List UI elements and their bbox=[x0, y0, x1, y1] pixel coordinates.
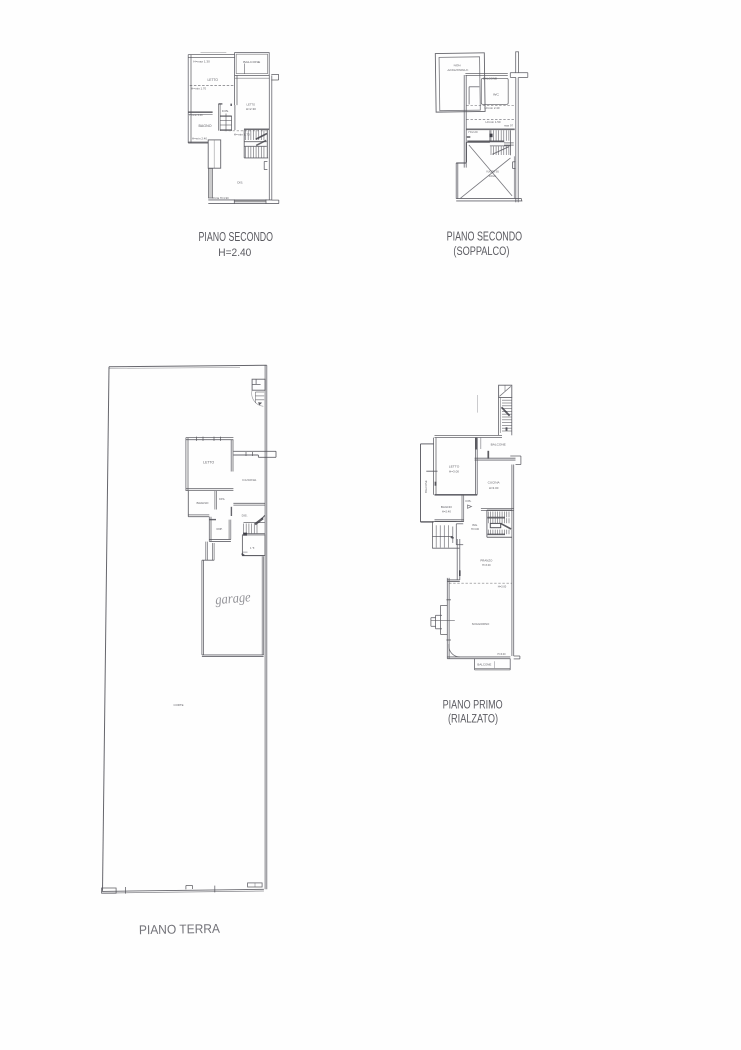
svg-text:H=3.00: H=3.00 bbox=[449, 469, 459, 473]
svg-text:BALCONE: BALCONE bbox=[243, 60, 260, 64]
svg-text:garage: garage bbox=[215, 590, 252, 608]
svg-text:H=3.00: H=3.00 bbox=[482, 564, 491, 567]
svg-text:PIANO TERRA: PIANO TERRA bbox=[139, 921, 221, 937]
svg-text:BAGNO: BAGNO bbox=[441, 505, 453, 509]
svg-text:DIS.: DIS. bbox=[222, 109, 229, 113]
svg-text:SOGG.: SOGG. bbox=[489, 174, 497, 178]
svg-text:PIANO SECONDO: PIANO SECONDO bbox=[199, 230, 274, 244]
svg-text:DIS.: DIS. bbox=[242, 514, 248, 518]
svg-text:H=3.00: H=3.00 bbox=[471, 528, 480, 531]
svg-text:LETTO: LETTO bbox=[207, 78, 218, 82]
svg-text:CUCINA: CUCINA bbox=[488, 481, 500, 485]
svg-text:(RIALZATO): (RIALZATO) bbox=[448, 714, 498, 726]
svg-text:CORTE: CORTE bbox=[174, 703, 184, 707]
svg-text:H=min 1.50: H=min 1.50 bbox=[486, 120, 502, 124]
svg-text:BALCONE: BALCONE bbox=[477, 663, 491, 667]
svg-text:PIANO PRIMO: PIANO PRIMO bbox=[443, 697, 503, 711]
svg-text:PIANO SECONDO: PIANO SECONDO bbox=[447, 230, 523, 244]
svg-text:DIS.: DIS. bbox=[237, 181, 243, 185]
svg-text:(SOPPALCO): (SOPPALCO) bbox=[453, 246, 509, 258]
svg-text:Porta H=1.90: Porta H=1.90 bbox=[213, 197, 230, 200]
svg-text:H=3.00: H=3.00 bbox=[498, 586, 507, 589]
svg-text:ING.: ING. bbox=[472, 523, 478, 527]
svg-text:I.T.: I.T. bbox=[250, 546, 255, 550]
svg-text:H=min 2.40: H=min 2.40 bbox=[192, 137, 208, 140]
svg-text:H=min 1.70: H=min 1.70 bbox=[191, 87, 207, 91]
svg-text:LETTO: LETTO bbox=[203, 461, 214, 465]
svg-text:LETTO: LETTO bbox=[247, 102, 256, 106]
svg-text:DIS.: DIS. bbox=[219, 497, 225, 501]
svg-text:BALCONE: BALCONE bbox=[491, 442, 506, 446]
svg-text:BAGNO: BAGNO bbox=[199, 124, 213, 128]
svg-text:SOGGIORNO: SOGGIORNO bbox=[472, 622, 490, 626]
svg-text:H=2.20: H=2.20 bbox=[469, 131, 479, 134]
svg-text:CUCINA: CUCINA bbox=[242, 478, 257, 482]
svg-text:VUOTO SU: VUOTO SU bbox=[486, 170, 499, 174]
svg-text:H=min 2.40: H=min 2.40 bbox=[485, 106, 501, 110]
svg-text:BAGNO: BAGNO bbox=[197, 501, 210, 505]
svg-text:PRANZO: PRANZO bbox=[480, 558, 493, 562]
svg-text:NON: NON bbox=[454, 63, 461, 67]
svg-text:ACCESSIBILE: ACCESSIBILE bbox=[447, 68, 468, 72]
svg-text:H=3.00: H=3.00 bbox=[498, 653, 507, 656]
svg-text:max 97: max 97 bbox=[504, 124, 514, 127]
svg-text:H=3.00: H=3.00 bbox=[489, 486, 499, 490]
svg-text:RIP.: RIP. bbox=[217, 527, 223, 531]
svg-text:BALCONE: BALCONE bbox=[424, 480, 428, 493]
svg-text:H=2.30: H=2.30 bbox=[246, 107, 256, 111]
svg-text:H=max 1.30: H=max 1.30 bbox=[193, 60, 210, 64]
svg-text:H=2.40: H=2.40 bbox=[442, 510, 452, 514]
svg-text:LETTO: LETTO bbox=[449, 464, 460, 468]
svg-text:H=min 2.40: H=min 2.40 bbox=[190, 114, 204, 117]
svg-text:H=2.40: H=2.40 bbox=[218, 247, 251, 259]
svg-text:WC: WC bbox=[493, 92, 500, 96]
svg-text:DIS.: DIS. bbox=[466, 499, 472, 503]
